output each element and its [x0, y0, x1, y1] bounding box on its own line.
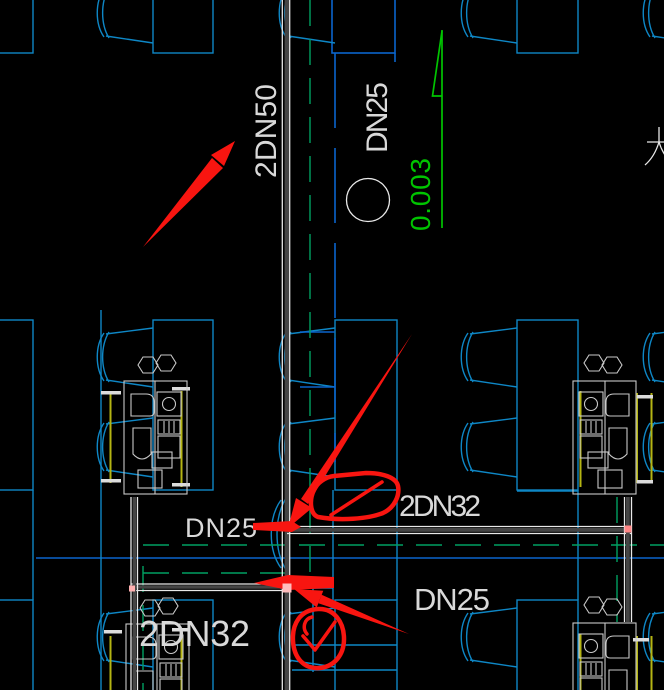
markup-layer: [129, 141, 632, 668]
grip-point-right: [625, 526, 632, 533]
label-riser-2dn50: 2DN50: [250, 83, 283, 178]
cad-canvas: 2DN50 DN25 0.003 DN25 2DN32 DN25 2DN32 大: [0, 0, 664, 690]
urinal-fixture: [97, 0, 153, 43]
wc-fixture-cluster: [573, 355, 636, 494]
markup-cloud: [311, 473, 398, 519]
markup-highlight-bar-upper: [253, 521, 301, 532]
urinal-fixture: [461, 418, 517, 477]
urinal-fixture: [643, 0, 664, 43]
label-pair-upper-2dn32: 2DN32: [399, 490, 482, 523]
urinal-fixture: [643, 418, 664, 477]
label-slope-value: 0.003: [405, 157, 436, 231]
urinal-fixture: [643, 328, 664, 387]
wc-fixture-cluster: [124, 355, 187, 494]
fixture-band-middle: [0, 320, 664, 491]
urinal-fixture: [97, 418, 153, 477]
riser-symbol-circle: [347, 179, 390, 222]
cad-drawing: 2DN50 DN25 0.003 DN25 2DN32 DN25 2DN32 大: [0, 0, 664, 690]
markup-check-circle: [293, 609, 344, 668]
markup-arrow-long-upper: [288, 334, 412, 528]
urinal-fixture: [643, 608, 664, 667]
grip-point-main-junction: [283, 584, 292, 593]
cjk-character-partial: 大: [645, 127, 664, 168]
urinal-fixture: [461, 328, 517, 387]
svg-text:大: 大: [646, 130, 664, 168]
label-branch-mid-dn25: DN25: [185, 513, 258, 543]
stall-rect-blue: [332, 0, 395, 53]
urinal-fixture: [461, 0, 517, 43]
label-branch-lower-dn25: DN25: [414, 582, 491, 617]
label-branch-top-dn25: DN25: [361, 81, 394, 153]
grip-point-left: [129, 586, 135, 592]
fixture-band-top: [0, 0, 664, 53]
markup-arrow-top-left: [143, 141, 235, 247]
wall-lines: [33, 53, 664, 690]
label-pair-lower-2dn32: 2DN32: [139, 613, 251, 654]
